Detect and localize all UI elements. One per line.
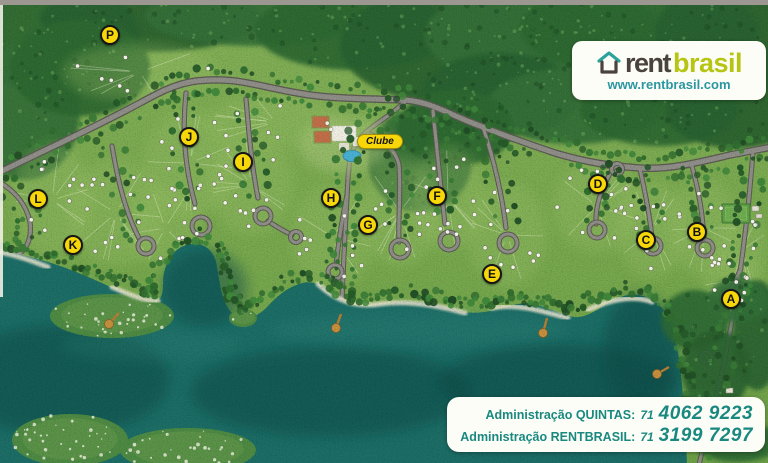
- section-marker-i: I: [233, 152, 253, 172]
- section-marker-a: A: [721, 289, 741, 309]
- admin-area-code-rentbrasil: 71: [640, 431, 653, 445]
- brand-row: rentbrasil: [596, 50, 742, 77]
- section-marker-p: P: [100, 25, 120, 45]
- admin-line-rentbrasil: Administração RENTBRASIL: 71 3199 7297: [447, 425, 765, 447]
- website-url: www.rentbrasil.com: [607, 77, 730, 92]
- admin-phone-quintas: 4062 9223: [659, 403, 753, 425]
- section-marker-b: B: [687, 222, 707, 242]
- house-icon: [596, 51, 622, 75]
- section-marker-g: G: [358, 215, 378, 235]
- section-marker-f: F: [427, 186, 447, 206]
- admin-phone-rentbrasil: 3199 7297: [659, 425, 753, 447]
- admin-label-quintas: Administração QUINTAS:: [486, 408, 636, 422]
- map-stage: A B C D E F G H I J K L P Clube rentbras…: [0, 0, 768, 463]
- brand-rent: rent: [625, 50, 670, 77]
- section-marker-l: L: [28, 189, 48, 209]
- section-marker-k: K: [63, 235, 83, 255]
- clube-label: Clube: [357, 134, 403, 149]
- admin-label-rentbrasil: Administração RENTBRASIL:: [460, 430, 635, 444]
- scan-edge-top: [0, 0, 768, 5]
- section-marker-j: J: [179, 127, 199, 147]
- section-marker-h: H: [321, 188, 341, 208]
- scan-edge-left: [0, 5, 3, 297]
- section-marker-c: C: [636, 230, 656, 250]
- admin-area-code-quintas: 71: [640, 409, 653, 423]
- admin-panel: Administração QUINTAS: 71 4062 9223 Admi…: [447, 397, 765, 452]
- admin-line-quintas: Administração QUINTAS: 71 4062 9223: [447, 403, 765, 425]
- section-marker-d: D: [588, 174, 608, 194]
- brand-brasil: brasil: [673, 50, 742, 77]
- section-marker-e: E: [482, 264, 502, 284]
- logo-card: rentbrasil www.rentbrasil.com: [572, 41, 766, 100]
